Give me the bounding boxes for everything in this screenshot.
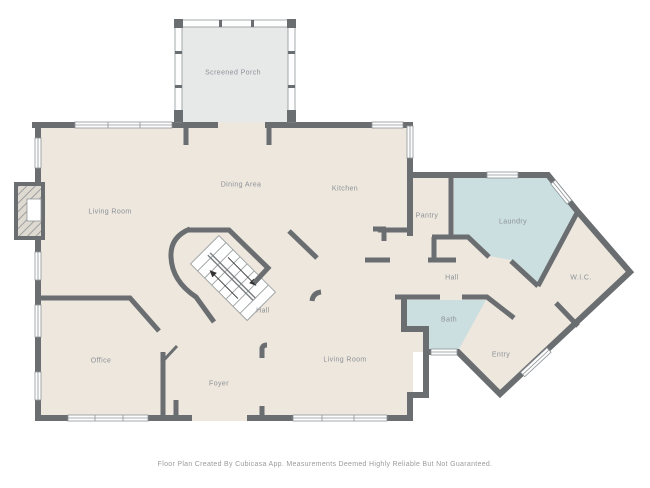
room-label-bath: Bath <box>441 317 457 324</box>
room-label-hall-center: Hall <box>256 308 270 315</box>
room-label-living-room-upper: Living Room <box>88 209 131 216</box>
porch-screen-top <box>182 20 288 27</box>
fireplace-icon <box>16 184 43 238</box>
room-label-foyer: Foyer <box>209 381 229 388</box>
disclaimer-text: Floor Plan Created By Cubicasa App. Meas… <box>158 461 493 468</box>
room-label-kitchen: Kitchen <box>332 186 358 193</box>
room-label-dining-area: Dining Area <box>221 182 262 189</box>
room-label-laundry: Laundry <box>499 219 527 226</box>
room-label-entry: Entry <box>492 352 510 359</box>
room-label-living-room-lower: Living Room <box>323 357 366 364</box>
room-label-office: Office <box>91 358 112 365</box>
porch-screen-right <box>288 20 295 122</box>
floor-plan-page: Screened Porch Living Room Dining Area K… <box>0 0 650 488</box>
room-label-hall-upper: Hall <box>445 275 459 282</box>
room-label-wic: W.I.C. <box>570 275 591 282</box>
porch-screen-left <box>175 20 182 122</box>
floor-plan-svg <box>0 0 650 488</box>
room-label-screened-porch: Screened Porch <box>205 70 261 77</box>
room-label-pantry: Pantry <box>416 213 439 220</box>
